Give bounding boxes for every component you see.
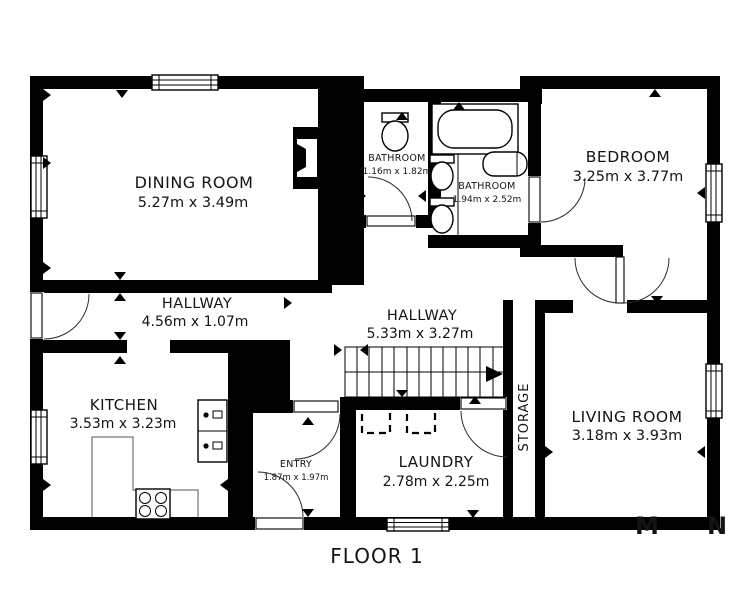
room-name: ENTRY xyxy=(280,459,312,470)
room-dims: 3.18m x 3.93m xyxy=(572,428,683,444)
room-dims: 1.87m x 1.97m xyxy=(264,473,329,483)
bathtub-icon xyxy=(432,104,518,154)
kitchen-sink-icon xyxy=(198,400,227,462)
room-name: KITCHEN xyxy=(90,396,159,414)
fireplace-icon xyxy=(297,139,317,177)
floor-plan: DINING ROOM 5.27m x 3.49m BATHROOM 1.16m… xyxy=(0,0,753,600)
hallway-center: HALLWAY 5.33m x 3.27m xyxy=(367,308,474,342)
room-name: STORAGE xyxy=(517,383,532,452)
room-dims: 5.33m x 3.27m xyxy=(367,326,474,342)
bathroom-small: BATHROOM 1.16m x 1.82m xyxy=(363,153,432,177)
watermark-letter: M xyxy=(635,512,659,540)
bathroom2-sink-icon xyxy=(483,152,527,176)
window-dining-top xyxy=(152,75,218,90)
room-name: BEDROOM xyxy=(586,148,670,166)
room-name: DINING ROOM xyxy=(135,173,254,192)
entry: ENTRY 1.87m x 1.97m xyxy=(264,459,329,483)
window-bedroom-right xyxy=(706,164,722,222)
entry-top-door xyxy=(294,401,340,459)
room-dims: 3.53m x 3.23m xyxy=(70,416,177,432)
floor-plan-page: DINING ROOM 5.27m x 3.49m BATHROOM 1.16m… xyxy=(0,0,753,600)
room-name: BATHROOM xyxy=(458,181,515,192)
bathroom-large: BATHROOM 1.94m x 2.52m xyxy=(453,181,522,205)
room-name: HALLWAY xyxy=(162,296,232,312)
bathroom1-door xyxy=(367,177,415,226)
bedroom: BEDROOM 3.25m x 3.77m xyxy=(573,148,684,185)
laundry: LAUNDRY 2.78m x 2.25m xyxy=(383,453,490,490)
room-dims: 1.16m x 1.82m xyxy=(363,167,432,177)
room-name: LAUNDRY xyxy=(399,453,474,471)
room-dims: 5.27m x 3.49m xyxy=(138,195,249,211)
storage: STORAGE xyxy=(517,383,532,452)
room-dims: 3.25m x 3.77m xyxy=(573,169,684,185)
stairs-direction-arrow xyxy=(486,366,503,382)
window-living-right xyxy=(706,364,722,418)
room-dims: 2.78m x 2.25m xyxy=(383,474,490,490)
room-dims: 4.56m x 1.07m xyxy=(142,314,249,330)
window-kitchen-left xyxy=(31,410,47,464)
living-room: LIVING ROOM 3.18m x 3.93m xyxy=(572,408,683,444)
watermark-letter: N xyxy=(707,512,727,540)
room-name: HALLWAY xyxy=(387,308,457,324)
floor-title: FLOOR 1 xyxy=(330,544,423,568)
front-door xyxy=(31,293,89,339)
hallway-west: HALLWAY 4.56m x 1.07m xyxy=(142,296,249,330)
stove-icon xyxy=(136,489,170,519)
room-name: BATHROOM xyxy=(368,153,425,164)
room-name: LIVING ROOM xyxy=(572,408,683,426)
laundry-door xyxy=(461,398,507,457)
stairs-icon xyxy=(345,347,505,397)
kitchen: KITCHEN 3.53m x 3.23m xyxy=(70,396,177,432)
room-dims: 1.94m x 2.52m xyxy=(453,195,522,205)
dining-room: DINING ROOM 5.27m x 3.49m xyxy=(135,173,254,211)
window-laundry-bottom xyxy=(387,518,449,531)
